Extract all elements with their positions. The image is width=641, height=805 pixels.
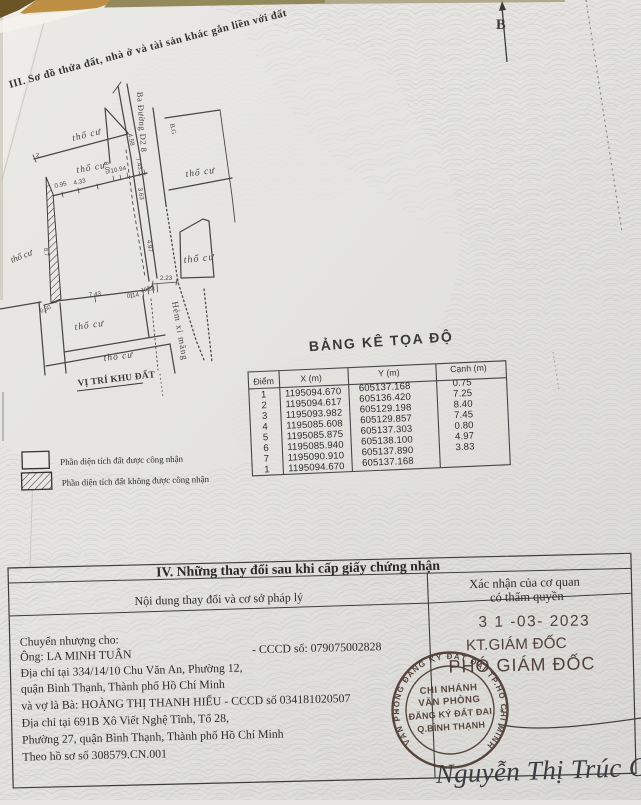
svg-text:2: 2: [36, 153, 39, 159]
svg-text:B: B: [496, 17, 506, 33]
svg-text:3 1 -03- 2023: 3 1 -03- 2023: [478, 612, 590, 630]
svg-text:có thẩm quyền: có thẩm quyền: [490, 589, 565, 605]
svg-text:Y (m): Y (m): [378, 367, 400, 378]
svg-text:Ông: LA MINH TUÂN: Ông: LA MINH TUÂN: [20, 647, 132, 664]
svg-text:✶: ✶: [499, 707, 505, 715]
svg-text:1: 1: [264, 464, 270, 475]
svg-text:Điểm: Điểm: [253, 376, 274, 387]
svg-text:X (m): X (m): [300, 373, 322, 384]
svg-text:8.7: 8.7: [42, 248, 49, 257]
svg-text:Xác nhận của cơ quan: Xác nhận của cơ quan: [469, 575, 581, 592]
svg-text:7: 7: [264, 454, 270, 465]
svg-text:2.23: 2.23: [160, 275, 173, 282]
svg-text:Chuyển nhượng cho:: Chuyển nhượng cho:: [20, 632, 119, 648]
svg-text:6: 6: [263, 443, 269, 454]
svg-text:5: 5: [263, 432, 269, 443]
svg-text:4: 4: [262, 421, 268, 432]
svg-text:1: 1: [261, 389, 267, 400]
svg-text:3.83: 3.83: [455, 441, 475, 453]
svg-text:KT.GIÁM ĐỐC: KT.GIÁM ĐỐC: [466, 634, 567, 654]
svg-text:3: 3: [262, 411, 268, 422]
svg-text:✶: ✶: [394, 707, 400, 715]
svg-text:605137.168: 605137.168: [362, 456, 414, 469]
svg-text:Cạnh (m): Cạnh (m): [450, 363, 487, 375]
svg-text:2: 2: [261, 400, 267, 411]
